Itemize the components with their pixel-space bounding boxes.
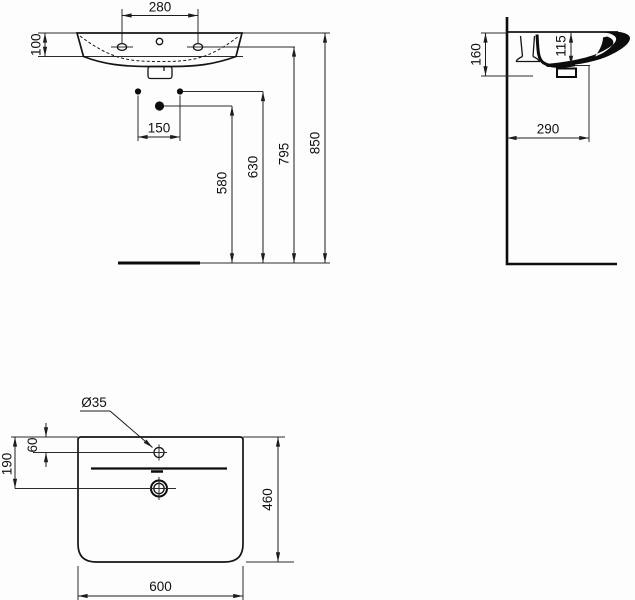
front-dim-580: 580 [215, 172, 230, 195]
front-dim-280: 280 [149, 0, 172, 15]
front-dim-850: 850 [308, 132, 323, 155]
waste-outlet-point [155, 101, 164, 110]
drawing-sheet: 280 100 150 580 630 795 850 160 115 [0, 0, 635, 600]
plan-dim-tap-hole-diameter: Ø35 [81, 395, 107, 410]
fixing-bolt-right [177, 88, 183, 94]
waste-trap [148, 67, 172, 79]
side-dim-160: 160 [469, 43, 484, 66]
side-view: 160 115 290 [469, 17, 631, 264]
plan-dim-460: 460 [260, 488, 275, 511]
front-view: 280 100 150 580 630 795 850 [29, 0, 331, 263]
plan-dim-190: 190 [0, 453, 15, 476]
tap-hole-diameter-leader [80, 411, 153, 448]
fixing-bolt-left [135, 88, 141, 94]
waste-outlet-side [557, 69, 576, 78]
side-dim-115: 115 [554, 35, 569, 57]
front-dim-100: 100 [29, 33, 44, 56]
side-dim-290: 290 [537, 122, 560, 137]
front-dim-795: 795 [277, 143, 292, 166]
front-dim-150: 150 [148, 121, 171, 136]
plan-view: 190 60 460 600 Ø35 [0, 395, 294, 600]
drawing-canvas: 280 100 150 580 630 795 850 160 115 [0, 0, 635, 600]
plan-dim-600: 600 [149, 579, 172, 594]
basin-plan-outline [78, 437, 243, 562]
overflow-hole [156, 38, 162, 44]
front-dim-630: 630 [246, 156, 261, 179]
basin-hidden-bowl-curve [80, 36, 239, 62]
plan-dim-60: 60 [25, 437, 40, 452]
